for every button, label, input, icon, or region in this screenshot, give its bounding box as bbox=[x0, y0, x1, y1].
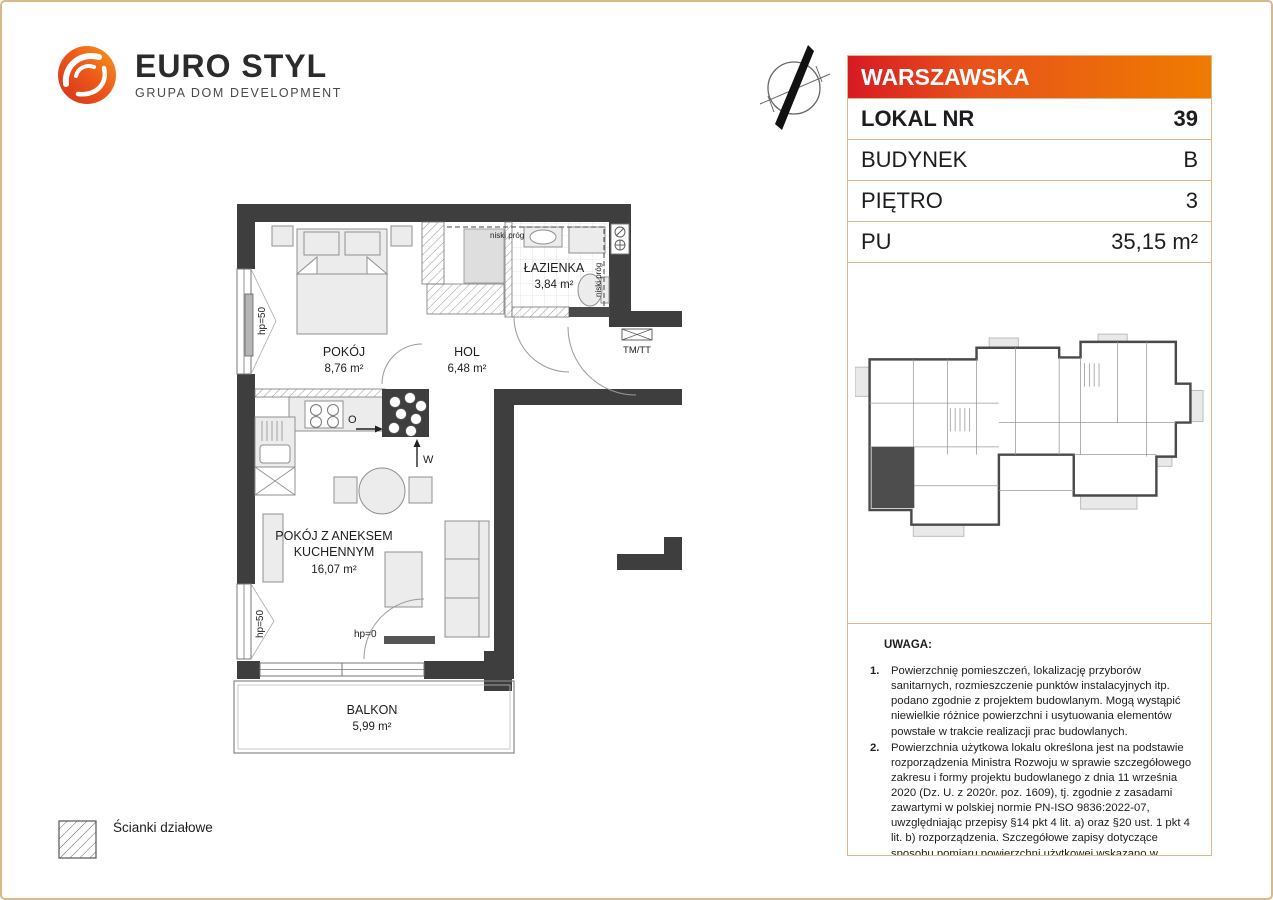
building-keyplan bbox=[855, 329, 1205, 557]
row-value: B bbox=[1183, 147, 1198, 173]
brand-title: EURO STYL bbox=[135, 50, 342, 82]
svg-text:5,99 m²: 5,99 m² bbox=[353, 721, 392, 733]
row-label: BUDYNEK bbox=[861, 147, 967, 173]
unit-info-panel: WARSZAWSKA LOKAL NR 39 BUDYNEK B PIĘTRO … bbox=[847, 55, 1212, 856]
table-row-pu: PU 35,15 m² bbox=[848, 221, 1211, 262]
svg-text:KUCHENNYM: KUCHENNYM bbox=[294, 545, 375, 559]
brand-logo: EURO STYL GRUPA DOM DEVELOPMENT bbox=[54, 42, 342, 108]
row-label: PIĘTRO bbox=[861, 188, 943, 214]
legend: Ścianki działowe bbox=[58, 820, 213, 835]
eurostyl-flame-icon bbox=[54, 42, 120, 108]
vent-w-label: W bbox=[423, 454, 434, 466]
room-balkon: BALKON bbox=[347, 703, 398, 717]
note-item: 1. Powierzchnię pomieszczeń, lokalizację… bbox=[870, 664, 1193, 740]
partition-hatch-icon bbox=[58, 820, 98, 860]
floorplan-page: EURO STYL GRUPA DOM DEVELOPMENT WARSZAWS… bbox=[0, 0, 1273, 900]
notes-heading: UWAGA: bbox=[884, 639, 1193, 651]
row-value: 3 bbox=[1186, 188, 1198, 214]
row-value: 35,15 m² bbox=[1111, 229, 1198, 255]
svg-text:3,84 m²: 3,84 m² bbox=[535, 279, 574, 291]
apartment-floorplan: hp=50 hp=50 bbox=[232, 199, 687, 807]
note-item: 2. Powierzchnia użytkowa lokalu określon… bbox=[870, 741, 1193, 855]
niski-prog-label: niski próg bbox=[490, 231, 524, 240]
niski-prog-label: niski próg bbox=[594, 263, 603, 297]
room-pokoj: POKÓJ bbox=[323, 344, 365, 359]
svg-text:6,48 m²: 6,48 m² bbox=[448, 363, 487, 375]
notes-section: UWAGA: 1. Powierzchnię pomieszczeń, loka… bbox=[848, 623, 1211, 855]
row-label: LOKAL NR bbox=[861, 106, 974, 132]
room-aneks: POKÓJ Z ANEKSEM bbox=[275, 528, 392, 543]
north-arrow-icon bbox=[748, 38, 843, 133]
highlighted-unit bbox=[871, 447, 914, 508]
row-label: PU bbox=[861, 229, 892, 255]
vent-o-label: O bbox=[348, 414, 357, 426]
brand-subtitle: GRUPA DOM DEVELOPMENT bbox=[135, 86, 342, 100]
ventilation-shaft bbox=[382, 389, 429, 437]
investment-name: WARSZAWSKA bbox=[848, 56, 1211, 98]
svg-text:8,76 m²: 8,76 m² bbox=[325, 363, 364, 375]
hp50-label: hp=50 bbox=[255, 610, 266, 639]
table-row-budynek: BUDYNEK B bbox=[848, 139, 1211, 180]
window-left-lower: hp=50 bbox=[237, 584, 274, 659]
row-value: 39 bbox=[1174, 106, 1198, 132]
balcony bbox=[234, 681, 514, 753]
table-row-lokal: LOKAL NR 39 bbox=[848, 98, 1211, 139]
hp50-label: hp=50 bbox=[257, 307, 268, 336]
window-left-upper: hp=50 bbox=[237, 269, 276, 374]
hp0-label: hp=0 bbox=[354, 629, 377, 640]
entry-tmtt: TM/TT bbox=[622, 329, 652, 356]
room-hol: HOL bbox=[454, 345, 480, 359]
room-lazienka: ŁAZIENKA bbox=[524, 261, 585, 275]
building-keyplan-box bbox=[848, 262, 1211, 623]
svg-text:16,07 m²: 16,07 m² bbox=[311, 564, 357, 576]
legend-label: Ścianki działowe bbox=[113, 820, 213, 835]
tm-tt-label: TM/TT bbox=[623, 345, 651, 356]
bed bbox=[297, 229, 387, 334]
table-row-pietro: PIĘTRO 3 bbox=[848, 180, 1211, 221]
